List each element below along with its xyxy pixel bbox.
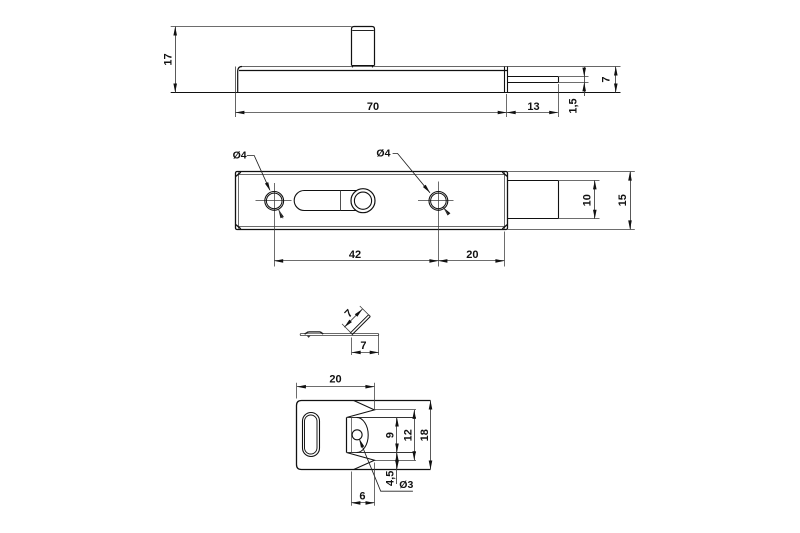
svg-text:4,5: 4,5	[385, 471, 397, 486]
svg-text:20: 20	[329, 374, 341, 386]
svg-text:Ø4: Ø4	[376, 148, 390, 160]
svg-text:17: 17	[163, 53, 175, 65]
svg-text:9: 9	[385, 432, 397, 438]
svg-text:10: 10	[582, 194, 594, 206]
svg-text:7: 7	[600, 76, 612, 82]
svg-text:7: 7	[360, 340, 366, 352]
svg-text:Ø4: Ø4	[233, 150, 247, 162]
svg-text:42: 42	[349, 249, 361, 261]
svg-text:70: 70	[367, 101, 379, 113]
svg-text:18: 18	[419, 429, 431, 441]
svg-text:12: 12	[403, 429, 415, 441]
svg-text:1,5: 1,5	[567, 98, 579, 113]
svg-text:Ø3: Ø3	[399, 479, 413, 491]
svg-text:13: 13	[527, 101, 539, 113]
svg-text:20: 20	[466, 249, 478, 261]
svg-text:6: 6	[359, 490, 365, 502]
svg-text:15: 15	[617, 194, 629, 206]
